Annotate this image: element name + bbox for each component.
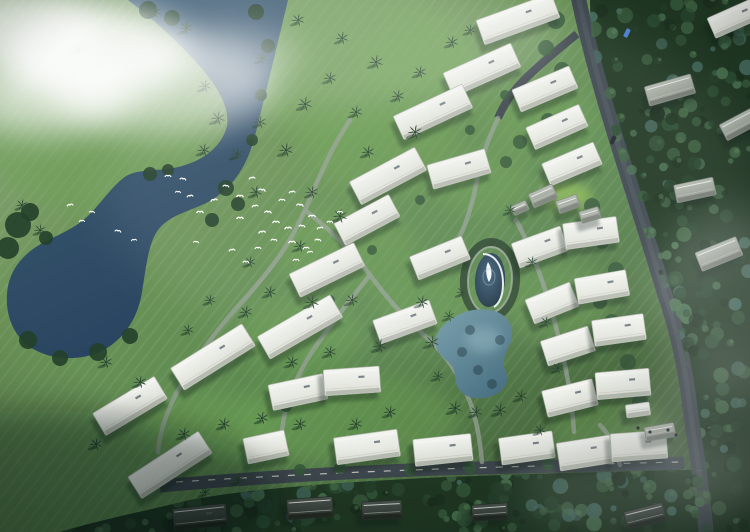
aerial-rendering — [0, 0, 750, 532]
rendering-canvas — [0, 0, 750, 532]
vignette-overlay — [0, 0, 750, 532]
